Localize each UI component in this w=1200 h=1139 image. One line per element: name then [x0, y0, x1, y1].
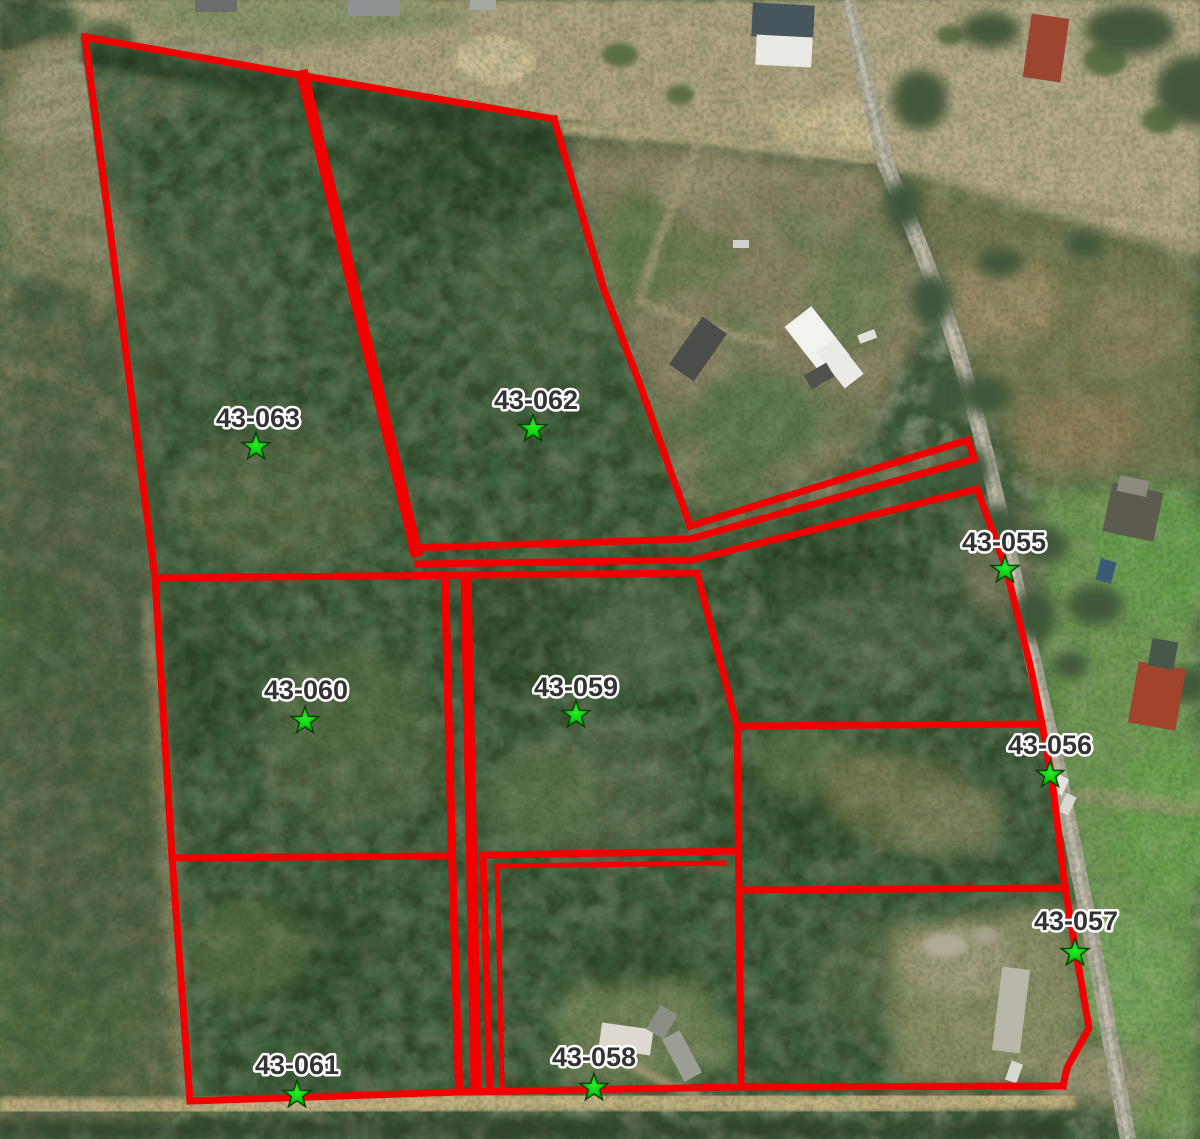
svg-text:43-061: 43-061 [255, 1050, 339, 1080]
svg-text:43-060: 43-060 [264, 675, 348, 705]
svg-text:43-059: 43-059 [534, 672, 618, 702]
svg-text:43-056: 43-056 [1008, 730, 1092, 760]
svg-text:43-062: 43-062 [494, 385, 578, 415]
svg-text:43-057: 43-057 [1034, 906, 1118, 936]
svg-text:43-055: 43-055 [962, 527, 1046, 557]
svg-text:43-058: 43-058 [552, 1042, 636, 1072]
svg-text:43-063: 43-063 [216, 403, 300, 433]
